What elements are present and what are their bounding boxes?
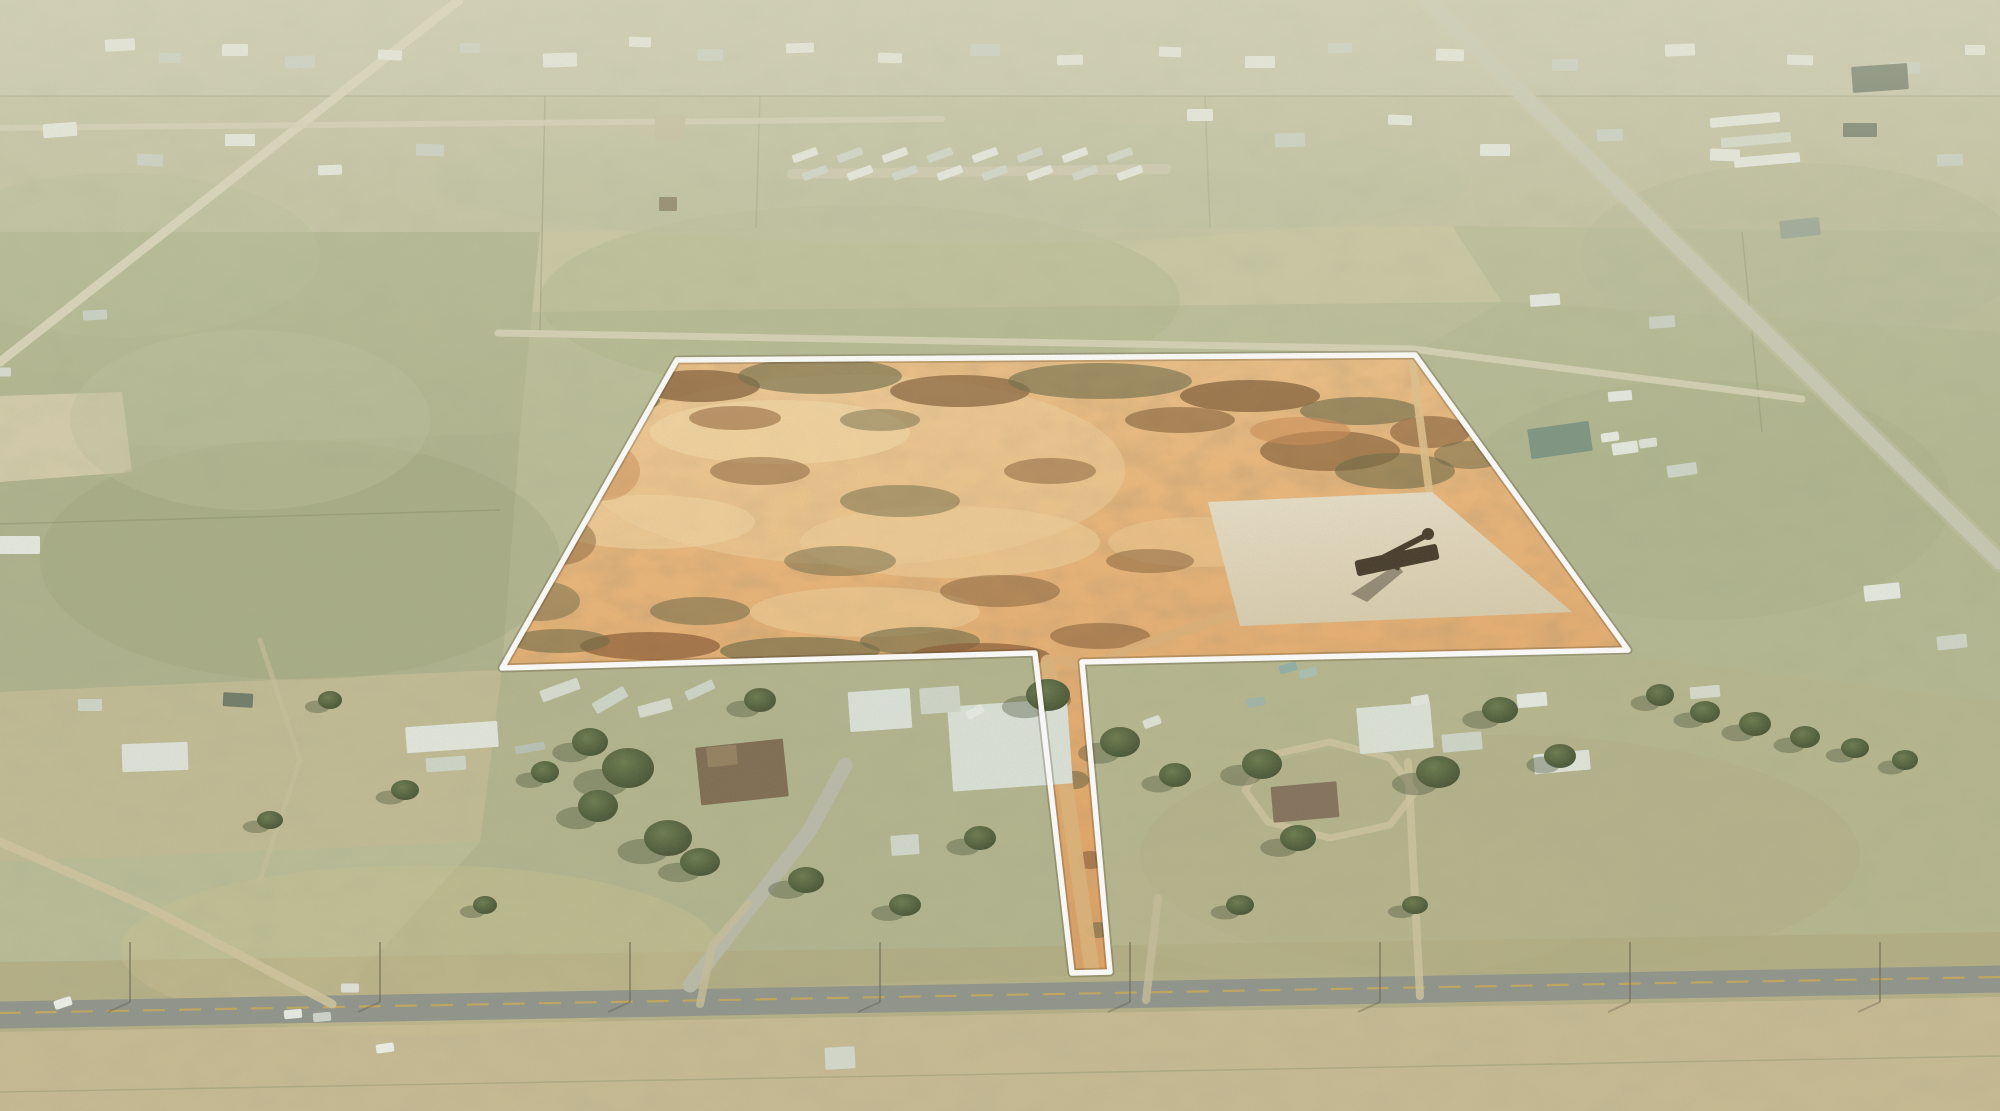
haze-overlay bbox=[0, 0, 2000, 1111]
aerial-photo-canvas bbox=[0, 0, 2000, 1111]
aerial-photo bbox=[0, 0, 2000, 1111]
